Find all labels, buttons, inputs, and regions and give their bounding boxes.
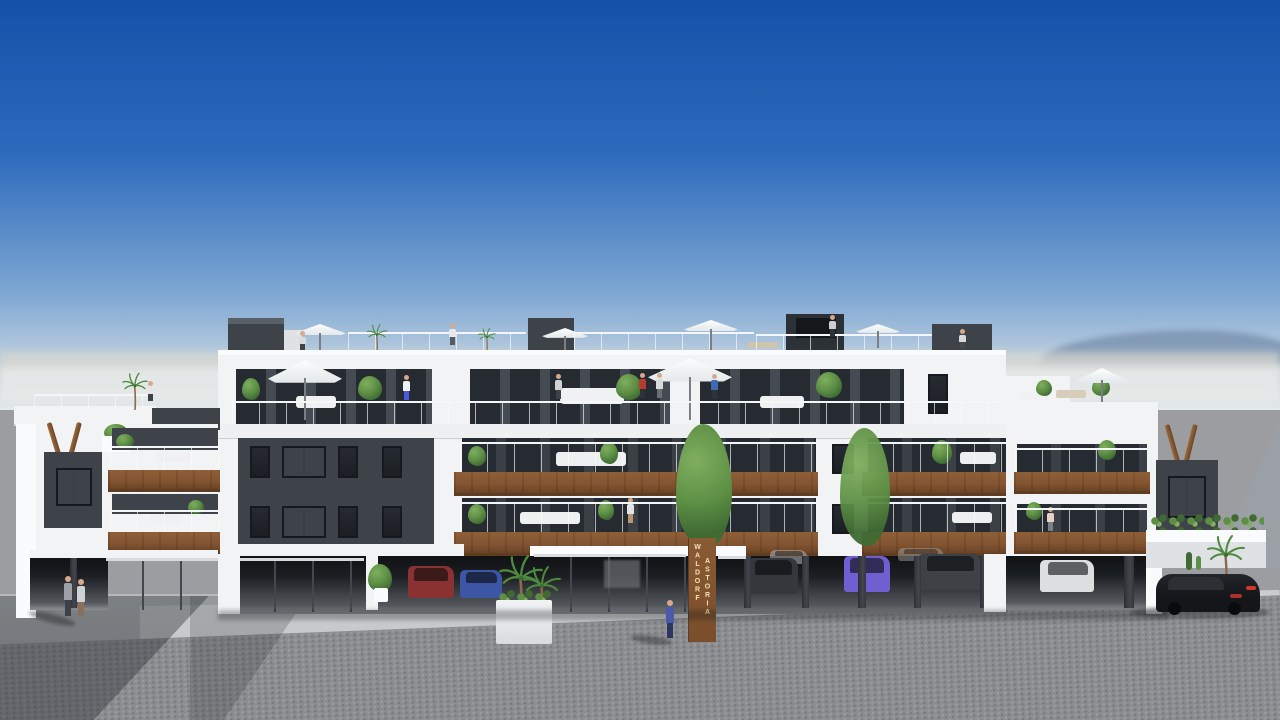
cactus	[1186, 552, 1192, 570]
window	[338, 506, 358, 538]
terrace-person	[710, 374, 719, 399]
window	[250, 446, 270, 478]
coupe-taillight	[1230, 594, 1242, 598]
balcony-wood-fascia	[108, 470, 220, 492]
plant-pot	[374, 588, 388, 602]
leftwing-storefront	[106, 558, 218, 610]
corner-pier	[218, 554, 240, 614]
terrace-fascia	[218, 424, 1006, 439]
waldorf-astoria-sign: WALDORF ASTORIA	[688, 538, 716, 642]
pedestrian	[664, 600, 675, 638]
balcony-wood-fascia	[1014, 472, 1150, 494]
lobby-staircase-hint	[604, 560, 640, 588]
coupe-wheel	[1168, 602, 1181, 615]
rooftop-umbrella	[684, 320, 738, 350]
garage-pillar	[858, 556, 866, 608]
car-blue	[460, 570, 502, 598]
parapet-coping	[218, 350, 1006, 355]
car-white-suv	[1040, 560, 1094, 592]
terrace-plant	[1036, 380, 1052, 396]
terrace-plant	[816, 372, 842, 398]
coupe-greenhouse	[1168, 577, 1224, 590]
rooftop-box-coping	[228, 318, 284, 324]
entrance-side-glass	[718, 556, 746, 608]
cactus	[1196, 556, 1201, 570]
rooftop-person	[448, 323, 457, 345]
coupe-taillight	[1246, 586, 1256, 590]
car-gray-suv	[918, 554, 982, 590]
garage-pillar	[914, 556, 921, 608]
rightwing-window	[1168, 476, 1206, 518]
balcony-wood-fascia	[454, 472, 818, 496]
rooftop-person	[828, 315, 837, 337]
double-window	[282, 446, 326, 478]
leftwing-roof-person	[146, 381, 155, 401]
pergola-beam	[1183, 424, 1198, 464]
terrace-person	[402, 375, 411, 400]
coupe-wheel	[1228, 602, 1241, 615]
balcony-glass-railing	[460, 442, 816, 474]
sign-line-2: ASTORIA	[704, 558, 711, 642]
storefront-glass	[238, 558, 364, 612]
window	[250, 506, 270, 538]
car-red	[408, 566, 454, 598]
pergola-beam	[1165, 424, 1181, 464]
terrace-person	[554, 374, 563, 399]
double-window	[282, 506, 326, 538]
terrace-plant	[358, 376, 382, 400]
white-planter-box	[496, 600, 552, 644]
window	[382, 446, 402, 478]
terrace-plant	[242, 378, 260, 400]
building-shadow	[218, 610, 1168, 620]
balcony-glass-railing	[460, 502, 816, 534]
rooftop-umbrella	[856, 324, 900, 348]
terrace-person	[655, 373, 664, 398]
terrace-person	[638, 373, 647, 398]
window	[338, 446, 358, 478]
car-dark-suv	[748, 558, 798, 594]
balcony-wood-fascia	[1014, 532, 1150, 554]
corner-pier	[984, 554, 1006, 612]
car-purple-suv	[844, 556, 890, 592]
rooftop-person	[958, 329, 967, 348]
pedestrian	[62, 576, 73, 616]
sign-line-1: WALDORF	[694, 544, 701, 642]
pedestrian	[76, 579, 86, 616]
architectural-render-scene: WALDORF ASTORIA	[0, 0, 1280, 720]
rooftop-person	[298, 331, 307, 351]
window	[382, 506, 402, 538]
garage-pillar	[1124, 556, 1134, 608]
leftwing-window	[56, 468, 92, 506]
garage-pillar	[802, 556, 809, 608]
